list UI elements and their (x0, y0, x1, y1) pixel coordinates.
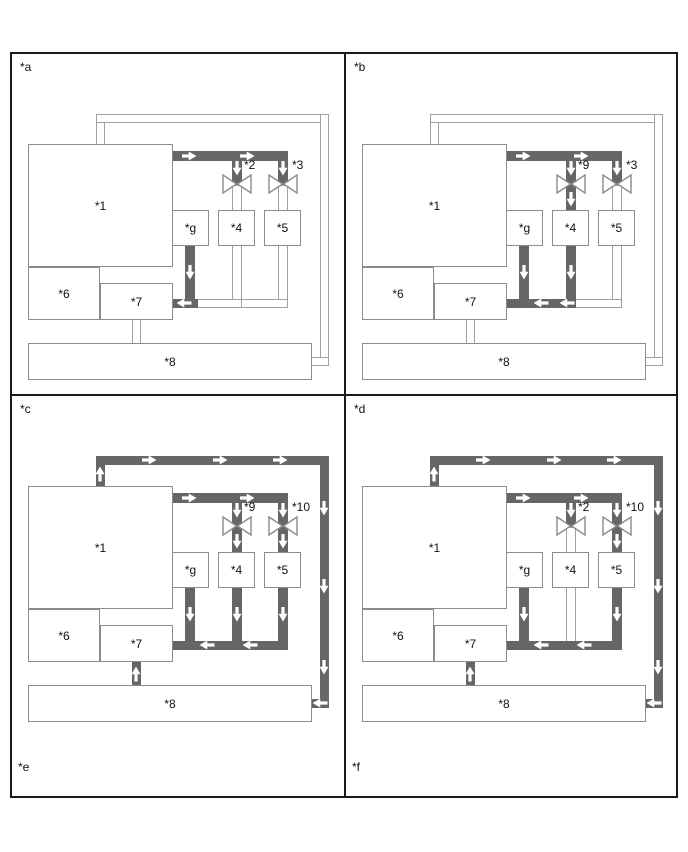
component-box-8: *8 (28, 343, 312, 380)
component-box-1: *1 (28, 144, 173, 267)
component-box-8-label: *8 (498, 355, 509, 369)
panel-a: *a*1*6*7*8*g*4*5*2*3 (12, 54, 342, 394)
valve-right-icon (268, 516, 298, 536)
component-box-g-label: *g (185, 563, 196, 577)
component-box-7-label: *7 (131, 295, 142, 309)
footer-label: *e (18, 760, 29, 774)
component-box-1-label: *1 (95, 199, 106, 213)
component-box-5-label: *5 (277, 563, 288, 577)
pipe-segment-loop-top-h (430, 114, 663, 123)
diagram-frame: *a*1*6*7*8*g*4*5*2*3*b*1*6*7*8*g*4*5*9*3… (10, 52, 678, 798)
valve-right-icon (602, 174, 632, 194)
component-box-8-label: *8 (164, 355, 175, 369)
component-box-g: *g (172, 552, 209, 588)
component-box-8-label: *8 (498, 697, 509, 711)
pipe-segment-bot-1 (173, 641, 198, 650)
valve-right-label: *10 (292, 500, 310, 514)
component-box-5-label: *5 (277, 221, 288, 235)
component-box-8: *8 (362, 343, 646, 380)
valve-right-label: *3 (292, 158, 303, 172)
valve-left-icon (556, 174, 586, 194)
panel-c: *c*1*6*7*8*g*4*5*9*10*e (12, 396, 342, 796)
component-box-1-label: *1 (95, 541, 106, 555)
pipe-segment-loop-bot-h (644, 357, 663, 366)
pipe-segment-loop-right-v (320, 114, 329, 366)
valve-right-icon (268, 174, 298, 194)
component-box-g-label: *g (519, 221, 530, 235)
component-box-1: *1 (362, 486, 507, 609)
component-box-6-label: *6 (392, 629, 403, 643)
pipe-segment-conn78 (132, 319, 141, 344)
valve-left-label: *2 (244, 158, 255, 172)
valve-right-label: *3 (626, 158, 637, 172)
pipe-segment-bot-3 (575, 299, 622, 308)
component-box-7-label: *7 (131, 637, 142, 651)
component-box-6: *6 (28, 609, 100, 662)
component-box-4-label: *4 (565, 563, 576, 577)
panel-label: *b (354, 60, 365, 74)
component-box-1: *1 (28, 486, 173, 609)
component-box-7-label: *7 (465, 295, 476, 309)
component-box-8: *8 (28, 685, 312, 722)
component-box-4: *4 (552, 210, 589, 246)
component-box-g-label: *g (519, 563, 530, 577)
pipe-segment-loop-bot-h (310, 357, 329, 366)
component-box-6: *6 (362, 267, 434, 320)
valve-left-label: *2 (578, 500, 589, 514)
component-box-4-label: *4 (565, 221, 576, 235)
pipe-segment-loop-top-h (96, 114, 329, 123)
pipe-segment-conn78 (466, 319, 475, 344)
panel-b: *b*1*6*7*8*g*4*5*9*3 (346, 54, 676, 394)
valve-right-label: *10 (626, 500, 644, 514)
component-box-6: *6 (362, 609, 434, 662)
component-box-g-label: *g (185, 221, 196, 235)
pipe-segment-bot-2 (197, 299, 242, 308)
component-box-7: *7 (100, 283, 173, 320)
component-box-7: *7 (434, 625, 507, 662)
component-box-5-label: *5 (611, 221, 622, 235)
valve-right-icon (602, 516, 632, 536)
pipe-segment-bot-3 (241, 299, 288, 308)
valve-left-icon (556, 516, 586, 536)
valve-left-label: *9 (244, 500, 255, 514)
component-box-5: *5 (598, 552, 635, 588)
component-box-7: *7 (100, 625, 173, 662)
component-box-g: *g (506, 552, 543, 588)
panel-label: *d (354, 402, 365, 416)
panel-label: *a (20, 60, 31, 74)
component-box-g: *g (506, 210, 543, 246)
component-box-1-label: *1 (429, 199, 440, 213)
panel-d: *d*1*6*7*8*g*4*5*2*10*f (346, 396, 676, 796)
component-box-4: *4 (218, 552, 255, 588)
component-box-8-label: *8 (164, 697, 175, 711)
pipe-segment-bot-1 (507, 641, 532, 650)
component-box-5: *5 (264, 210, 301, 246)
component-box-4-label: *4 (231, 221, 242, 235)
pipe-segment-bot-1 (507, 299, 532, 308)
component-box-4: *4 (218, 210, 255, 246)
valve-left-label: *9 (578, 158, 589, 172)
pipe-segment-loop-right-v (654, 114, 663, 366)
component-box-5: *5 (598, 210, 635, 246)
component-box-6: *6 (28, 267, 100, 320)
component-box-6-label: *6 (392, 287, 403, 301)
component-box-g: *g (172, 210, 209, 246)
panel-label: *c (20, 402, 31, 416)
component-box-1-label: *1 (429, 541, 440, 555)
component-box-8: *8 (362, 685, 646, 722)
footer-label: *f (352, 760, 360, 774)
component-box-1: *1 (362, 144, 507, 267)
component-box-6-label: *6 (58, 629, 69, 643)
component-box-4: *4 (552, 552, 589, 588)
coolant-flow-diagram: *a*1*6*7*8*g*4*5*2*3*b*1*6*7*8*g*4*5*9*3… (0, 0, 688, 852)
component-box-7: *7 (434, 283, 507, 320)
component-box-7-label: *7 (465, 637, 476, 651)
valve-left-icon (222, 174, 252, 194)
component-box-5: *5 (264, 552, 301, 588)
component-box-6-label: *6 (58, 287, 69, 301)
component-box-4-label: *4 (231, 563, 242, 577)
component-box-5-label: *5 (611, 563, 622, 577)
valve-left-icon (222, 516, 252, 536)
